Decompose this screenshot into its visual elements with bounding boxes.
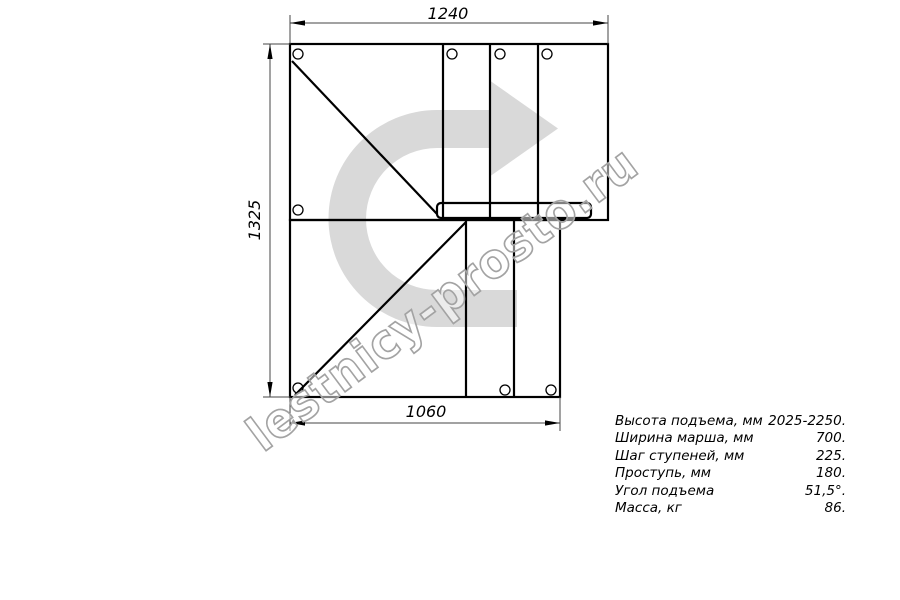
spec-label: Масса, кг (615, 500, 682, 517)
mounting-hole (293, 49, 303, 59)
spec-row: Высота подъема, мм 2025-2250. (615, 413, 846, 430)
spec-value: 51,5°. (805, 483, 846, 500)
specs-table: Высота подъема, мм 2025-2250. Ширина мар… (615, 413, 846, 517)
dimension-arrowhead (593, 20, 608, 25)
mounting-hole (495, 49, 505, 59)
mounting-hole (500, 385, 510, 395)
staircase-drawing-page: 1240 1325 1060 lestnicy-prosto. (0, 0, 900, 600)
dimension-left: 1325 (245, 44, 290, 397)
dimension-arrowhead (290, 20, 305, 25)
spec-value: 2025-2250. (768, 413, 846, 430)
spec-label: Проступь, мм (615, 465, 711, 482)
dimension-arrowhead (545, 420, 560, 425)
spec-label: Угол подъема (615, 483, 714, 500)
spec-value: 225. (816, 448, 846, 465)
mounting-hole (293, 205, 303, 215)
dimension-top-label: 1240 (428, 4, 469, 23)
mounting-hole (542, 49, 552, 59)
spec-value: 700. (816, 430, 846, 447)
spec-value: 86. (825, 500, 846, 517)
mounting-hole (447, 49, 457, 59)
spec-label: Шаг ступеней, мм (615, 448, 744, 465)
dimension-left-label: 1325 (245, 200, 264, 241)
dimension-bottom-label: 1060 (406, 402, 447, 421)
spec-label: Ширина марша, мм (615, 430, 754, 447)
spec-row: Угол подъема 51,5°. (615, 483, 846, 500)
mounting-hole (546, 385, 556, 395)
spec-value: 180. (816, 465, 846, 482)
spec-row: Масса, кг 86. (615, 500, 846, 517)
dimension-top: 1240 (290, 4, 608, 44)
dimension-arrowhead (267, 44, 272, 59)
spec-row: Шаг ступеней, мм 225. (615, 448, 846, 465)
spec-row: Проступь, мм 180. (615, 465, 846, 482)
spec-row: Ширина марша, мм 700. (615, 430, 846, 447)
spec-label: Высота подъема, мм (615, 413, 763, 430)
